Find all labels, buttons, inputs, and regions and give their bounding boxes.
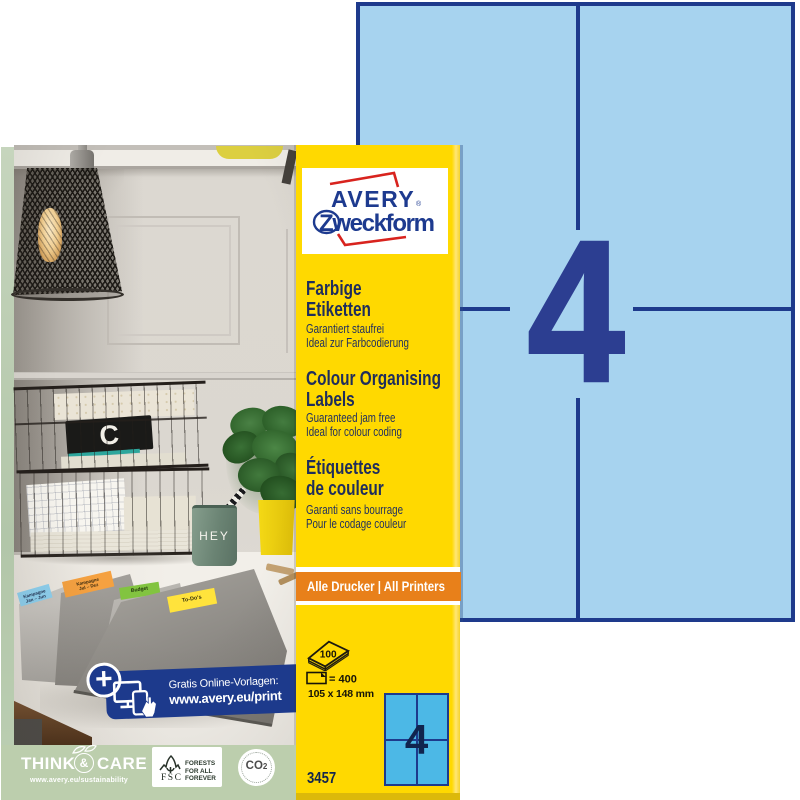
svg-text:®: ® xyxy=(416,200,422,208)
svg-text:= 400: = 400 xyxy=(329,674,357,686)
svg-text:100: 100 xyxy=(320,649,337,660)
svg-text:AVERY: AVERY xyxy=(331,186,415,212)
svg-text:Zweckform: Zweckform xyxy=(319,210,435,237)
